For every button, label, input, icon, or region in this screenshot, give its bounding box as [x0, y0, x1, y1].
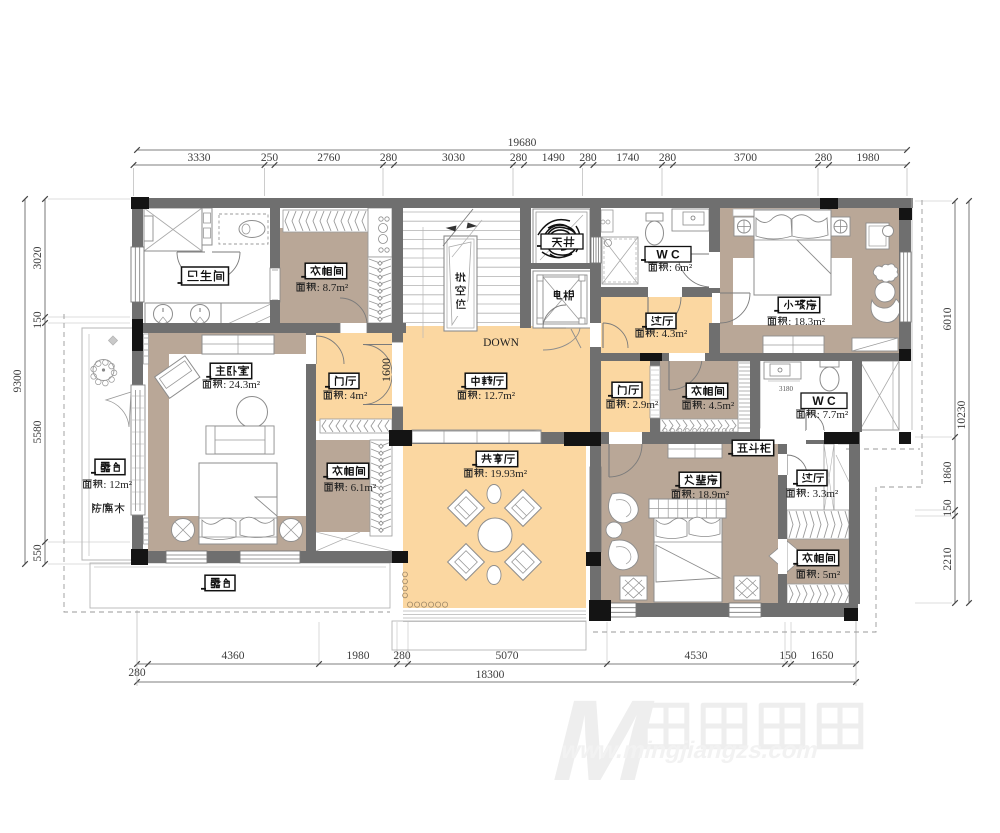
svg-text:1980: 1980 — [347, 650, 370, 662]
svg-text:280: 280 — [393, 650, 411, 662]
svg-text:250: 250 — [261, 152, 279, 164]
svg-text:: 7.7m²: : 7.7m² — [817, 409, 849, 421]
svg-text:150: 150 — [942, 499, 954, 517]
svg-text:19680: 19680 — [508, 137, 537, 149]
svg-text:2760: 2760 — [317, 152, 340, 164]
svg-text:: 5m²: : 5m² — [817, 569, 841, 581]
svg-text:: 18.3m²: : 18.3m² — [788, 316, 826, 328]
svg-text:150: 150 — [32, 311, 44, 329]
svg-text:3700: 3700 — [734, 152, 757, 164]
svg-text:6010: 6010 — [942, 307, 954, 330]
svg-text:: 4m²: : 4m² — [344, 390, 368, 402]
svg-text:DOWN: DOWN — [483, 337, 519, 349]
svg-text:: 2.9m²: : 2.9m² — [627, 399, 659, 411]
svg-text:2210: 2210 — [942, 547, 954, 570]
svg-text:3330: 3330 — [188, 152, 211, 164]
svg-text:www.mingjiangzs.com: www.mingjiangzs.com — [557, 737, 821, 764]
svg-text:5580: 5580 — [32, 420, 44, 443]
svg-text:3020: 3020 — [32, 246, 44, 269]
svg-text:1600: 1600 — [379, 358, 393, 382]
svg-text:1490: 1490 — [542, 152, 565, 164]
svg-text:: 6.1m²: : 6.1m² — [345, 482, 377, 494]
svg-text:1740: 1740 — [616, 152, 639, 164]
svg-text:4360: 4360 — [222, 650, 245, 662]
svg-text:3030: 3030 — [442, 152, 465, 164]
svg-text:1980: 1980 — [857, 152, 880, 164]
svg-text:: 12m²: : 12m² — [103, 479, 132, 491]
svg-text:4530: 4530 — [685, 650, 708, 662]
svg-text:5070: 5070 — [496, 650, 519, 662]
svg-text:: 18.9m²: : 18.9m² — [692, 489, 730, 501]
svg-text:: 4.5m²: : 4.5m² — [703, 400, 735, 412]
svg-text:W C: W C — [656, 248, 680, 262]
svg-text:: 6m²: : 6m² — [669, 262, 693, 274]
svg-text:280: 280 — [659, 152, 677, 164]
svg-text:1650: 1650 — [811, 650, 834, 662]
svg-text:150: 150 — [779, 650, 797, 662]
svg-text:1860: 1860 — [942, 461, 954, 484]
svg-text:9300: 9300 — [12, 369, 24, 392]
svg-text:: 19.93m²: : 19.93m² — [485, 468, 528, 480]
svg-text:W C: W C — [812, 394, 836, 408]
svg-text:: 3.3m²: : 3.3m² — [807, 488, 839, 500]
svg-text:280: 280 — [510, 152, 528, 164]
svg-text:: 8.7m²: : 8.7m² — [317, 282, 349, 294]
svg-text:: 24.3m²: : 24.3m² — [223, 379, 261, 391]
svg-text:550: 550 — [32, 544, 44, 562]
svg-text:: 12.7m²: : 12.7m² — [478, 390, 516, 402]
svg-text:280: 280 — [579, 152, 597, 164]
svg-text:280: 280 — [815, 152, 833, 164]
svg-text:3180: 3180 — [779, 385, 794, 393]
svg-text:10230: 10230 — [956, 400, 968, 429]
svg-text:18300: 18300 — [476, 669, 505, 681]
svg-text:280: 280 — [380, 152, 398, 164]
svg-text:: 4.3m²: : 4.3m² — [656, 328, 688, 340]
